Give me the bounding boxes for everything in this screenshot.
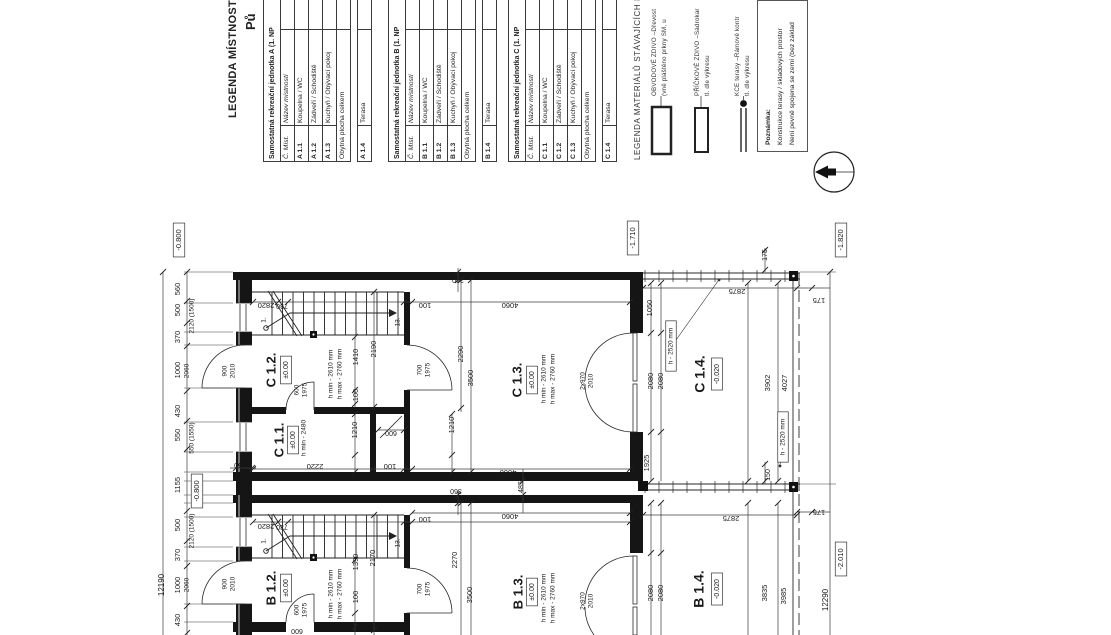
dim-label: 360 bbox=[234, 461, 246, 468]
materials-legend-title: LEGENDA MATERIÁLŮ STÁVAJÍCÍCH KONSTR bbox=[633, 0, 642, 160]
room-label: C 1.4. bbox=[692, 355, 708, 392]
level-label: -1.820 bbox=[836, 229, 845, 250]
dim-label: 4027 bbox=[780, 375, 789, 392]
room-label: C 1.3. bbox=[509, 363, 524, 398]
dim-label: 1390 bbox=[351, 554, 360, 571]
dim-label: 2x970 bbox=[580, 592, 587, 610]
table-row: A 1.3Kuchyň / Obývací pokoj bbox=[323, 0, 337, 162]
dim-label: 3835 bbox=[760, 585, 769, 602]
material-item-line: tl. dle výkresu bbox=[743, 16, 753, 96]
dim-label: 100 bbox=[384, 462, 397, 471]
room-label: B 1.3. bbox=[510, 575, 525, 610]
exterior-wall-symbol bbox=[652, 107, 671, 154]
table-total-row: Obytná plocha celkem bbox=[582, 0, 596, 162]
dim-label: h max - 2760 mm bbox=[550, 354, 557, 405]
dim-label: 2290 bbox=[456, 346, 465, 363]
table-header-row: Samostatná rekreační jednotka A (1. NP bbox=[264, 0, 281, 162]
level-label: ±0.00 bbox=[290, 431, 297, 449]
dim-label: 430 bbox=[173, 405, 182, 418]
level-label: -0.800 bbox=[192, 480, 201, 501]
level-label: -0.020 bbox=[714, 364, 721, 384]
dim-label: 1000 bbox=[173, 362, 182, 379]
dim-label: 560 bbox=[173, 283, 182, 296]
table-row: C 1.2Zádveří / Schodiště bbox=[554, 0, 568, 162]
note-line: Není pevně spojena se zemí (bez základ bbox=[787, 5, 799, 145]
dim-label: 370 bbox=[173, 549, 182, 562]
sheet-partial-title: Pů bbox=[243, 13, 258, 30]
dim-label: h max - 2760 mm bbox=[337, 569, 344, 620]
table-row: C 1.1Koupelna / WC bbox=[540, 0, 554, 162]
dim-label: 3500 bbox=[465, 587, 474, 604]
dim-label: h min - 2610 mm bbox=[541, 355, 548, 404]
dim-label: 13. bbox=[395, 538, 402, 547]
floorplan-sheet: Pů LEGENDA MÍSTNOSTÍ: Samostatná rekreač… bbox=[0, 0, 1111, 635]
terrace-structure-symbol bbox=[741, 108, 746, 152]
dim-label: 730 bbox=[276, 523, 288, 530]
dim-label: 2080 bbox=[646, 373, 655, 390]
level-label: ±0.00 bbox=[529, 583, 536, 601]
dim-label: 1925 bbox=[642, 455, 651, 472]
table-row: B 1.1Koupelna / WC bbox=[420, 0, 434, 162]
room-label: B 1.4. bbox=[691, 570, 707, 607]
table-row: A 1.2Zádveří / Schodiště bbox=[309, 0, 323, 162]
terrace-post bbox=[638, 481, 648, 491]
dim-label: 4660 bbox=[500, 468, 517, 477]
dim-label: h min - 2610 mm bbox=[328, 570, 335, 619]
dim-label: 1. bbox=[261, 317, 268, 323]
level-label: -2.010 bbox=[836, 548, 845, 569]
dim-label: 1975 bbox=[302, 382, 309, 397]
dim-label: 2080 bbox=[656, 373, 665, 390]
rooms-legend-title: LEGENDA MÍSTNOSTÍ: bbox=[227, 0, 239, 118]
dim-label: 900 bbox=[222, 365, 229, 376]
dim-label: 2190 bbox=[369, 341, 378, 358]
room-label: B 1.2. bbox=[263, 571, 278, 606]
dim-label: 2010 bbox=[230, 576, 237, 591]
table-row: A 1.1Koupelna / WC bbox=[295, 0, 309, 162]
dim-label: 600 bbox=[294, 384, 301, 395]
dim-label: 2060 bbox=[184, 577, 191, 592]
table-row: B 1.2Zádveří / Schodiště bbox=[434, 0, 448, 162]
dim-label: 1. bbox=[261, 538, 268, 544]
dim-label: 2120 (1500) bbox=[189, 298, 196, 333]
dim-label: 900 bbox=[222, 578, 229, 589]
dim-label: 1410 bbox=[351, 349, 360, 366]
note-line: Konstrukce terasy / skladových prostor bbox=[775, 5, 787, 145]
dim-label: 3500 bbox=[466, 370, 475, 387]
dim-label: 600 bbox=[385, 429, 397, 436]
table-total-row: Obytná plocha celkem bbox=[462, 0, 476, 162]
dim-label: 2875 bbox=[723, 514, 740, 523]
dim-label: 100 bbox=[419, 301, 432, 310]
material-item-exterior-wall: OBVODOVÉ ZDIVO –Dřevost (vně pláštěno pr… bbox=[650, 9, 670, 96]
note-box: Poznámka: Konstrukce terasy / skladových… bbox=[757, 0, 808, 152]
dim-label: 175 bbox=[813, 508, 826, 517]
dim-label: 1155 bbox=[173, 477, 182, 493]
level-label: h - 2520 mm bbox=[780, 419, 787, 456]
dim-label: 600 bbox=[291, 627, 303, 634]
level-label: ±0.00 bbox=[283, 361, 290, 379]
dim-label: 1975 bbox=[425, 581, 432, 596]
material-item-line: KCE terasy –Rámově kontr bbox=[733, 16, 743, 96]
level-label: -0.800 bbox=[174, 229, 183, 250]
dim-label: 2080 bbox=[656, 585, 665, 602]
dim-label: h min - 2610 mm bbox=[541, 574, 548, 623]
dim-label: 2170 bbox=[368, 550, 377, 567]
table-total-row: Obytná plocha celkem bbox=[337, 0, 351, 162]
dim-label: h min - 2480 bbox=[301, 420, 308, 457]
dim-label: 430 bbox=[173, 614, 182, 627]
dim-label: 3902 bbox=[763, 375, 772, 392]
dim-label: 485 bbox=[518, 481, 525, 493]
dim-label: 700 bbox=[417, 583, 424, 594]
dim-label: 2010 bbox=[230, 363, 237, 378]
note-title: Poznámka: bbox=[763, 5, 775, 145]
dim-label: 1975 bbox=[425, 362, 432, 377]
dim-label: h max - 2760 mm bbox=[337, 349, 344, 400]
level-label: ±0.00 bbox=[529, 371, 536, 389]
dim-label: 1210 bbox=[447, 417, 456, 434]
table-colheads: Č. Míst.Název místností bbox=[406, 0, 420, 162]
dim-label: h min - 2610 mm bbox=[328, 350, 335, 399]
dim-label: 100 bbox=[419, 515, 432, 524]
room-table-c: Samostatná rekreační jednotka C (1. NPČ.… bbox=[508, 0, 617, 162]
north-arrow-icon bbox=[814, 152, 854, 192]
dim-label: 550 (1550) bbox=[189, 422, 196, 453]
material-item-line: OBVODOVÉ ZDIVO –Dřevost bbox=[650, 9, 660, 96]
table-header-row: Samostatná rekreační jednotka C (1. NP bbox=[509, 0, 526, 162]
dim-label: 360 bbox=[452, 276, 464, 283]
material-item-line: (vně pláštěno prkny SM, u bbox=[660, 9, 670, 96]
room-table-a: Samostatná rekreační jednotka A (1. NPČ.… bbox=[263, 0, 372, 162]
dim-label: 730 bbox=[276, 302, 288, 309]
dim-label: 500 bbox=[173, 304, 182, 317]
dim-label: 175 bbox=[762, 249, 769, 261]
level-label: ±0.00 bbox=[283, 579, 290, 597]
dim-label: 12290 bbox=[821, 588, 830, 611]
dim-label: 600 bbox=[294, 604, 301, 615]
dim-label: 12190 bbox=[157, 573, 166, 596]
table-row: A 1.4Terasa bbox=[358, 0, 372, 162]
material-item-line: tl. dle výkresu bbox=[703, 8, 713, 96]
table-header-row: Samostatná rekreační jednotka B (1. NP bbox=[389, 0, 406, 162]
dim-label: 370 bbox=[173, 331, 182, 344]
table-colheads: Č. Míst.Název místností bbox=[526, 0, 540, 162]
partition-wall-symbol bbox=[695, 108, 708, 152]
table-row: C 1.3Kuchyň / Obývací pokoj bbox=[568, 0, 582, 162]
dim-label: 2010 bbox=[588, 373, 595, 388]
dim-label: 2875 bbox=[729, 287, 746, 296]
level-label: h - 2520 mm bbox=[668, 328, 675, 365]
dim-label: 1210 bbox=[350, 422, 359, 439]
dim-label: 100 bbox=[351, 389, 360, 402]
dim-label: 550 bbox=[173, 429, 182, 442]
dim-label: 13. bbox=[395, 317, 402, 326]
dim-label: 4060 bbox=[502, 301, 519, 310]
material-item-line: PŘÍČKOVÉ ZDIVO –Sádrokar bbox=[693, 8, 703, 96]
dim-label: 2270 bbox=[450, 552, 459, 569]
dim-label: h max - 2760 mm bbox=[550, 573, 557, 624]
room-label: C 1.2. bbox=[263, 353, 278, 388]
dim-label: 2x970 bbox=[580, 372, 587, 390]
table-row: C 1.4Terasa bbox=[603, 0, 617, 162]
dim-label: 500 bbox=[173, 519, 182, 532]
dim-label: 100 bbox=[351, 591, 360, 604]
dim-label: 2060 bbox=[184, 363, 191, 378]
dim-label: 1975 bbox=[302, 602, 309, 617]
table-colheads: Č. Míst.Název místností bbox=[281, 0, 295, 162]
level-label: -1.710 bbox=[628, 227, 637, 248]
dim-label: 2820 bbox=[258, 301, 275, 310]
dim-label: 3985 bbox=[779, 588, 788, 605]
dim-label: 1000 bbox=[173, 577, 182, 594]
dim-label: 2010 bbox=[588, 593, 595, 608]
dim-label: 2120 (1500) bbox=[189, 513, 196, 548]
material-symbols bbox=[652, 96, 747, 154]
dim-label: 175 bbox=[813, 296, 826, 305]
table-row: B 1.3Kuchyň / Obývací pokoj bbox=[448, 0, 462, 162]
dim-label: 1050 bbox=[645, 300, 654, 317]
dim-label: 4060 bbox=[502, 512, 519, 521]
table-row: B 1.4Terasa bbox=[483, 0, 497, 162]
material-item-terrace: KCE terasy –Rámově kontr tl. dle výkresu bbox=[733, 16, 753, 96]
dim-label: 150 bbox=[765, 469, 772, 481]
dim-label: 360 bbox=[450, 487, 462, 494]
level-label: -0.020 bbox=[714, 579, 721, 599]
dim-label: 2220 bbox=[307, 462, 324, 471]
dim-label: 2080 bbox=[646, 585, 655, 602]
dim-label: 2820 bbox=[258, 522, 275, 531]
room-table-b: Samostatná rekreační jednotka B (1. NPČ.… bbox=[388, 0, 497, 162]
dim-label: 700 bbox=[417, 364, 424, 375]
plan-labels: -0.800-0.800-1.710-1.820-2.010±0.00±0.00… bbox=[157, 221, 847, 634]
material-item-partition-wall: PŘÍČKOVÉ ZDIVO –Sádrokar tl. dle výkresu bbox=[693, 8, 713, 96]
room-label: C 1.1. bbox=[271, 423, 286, 458]
